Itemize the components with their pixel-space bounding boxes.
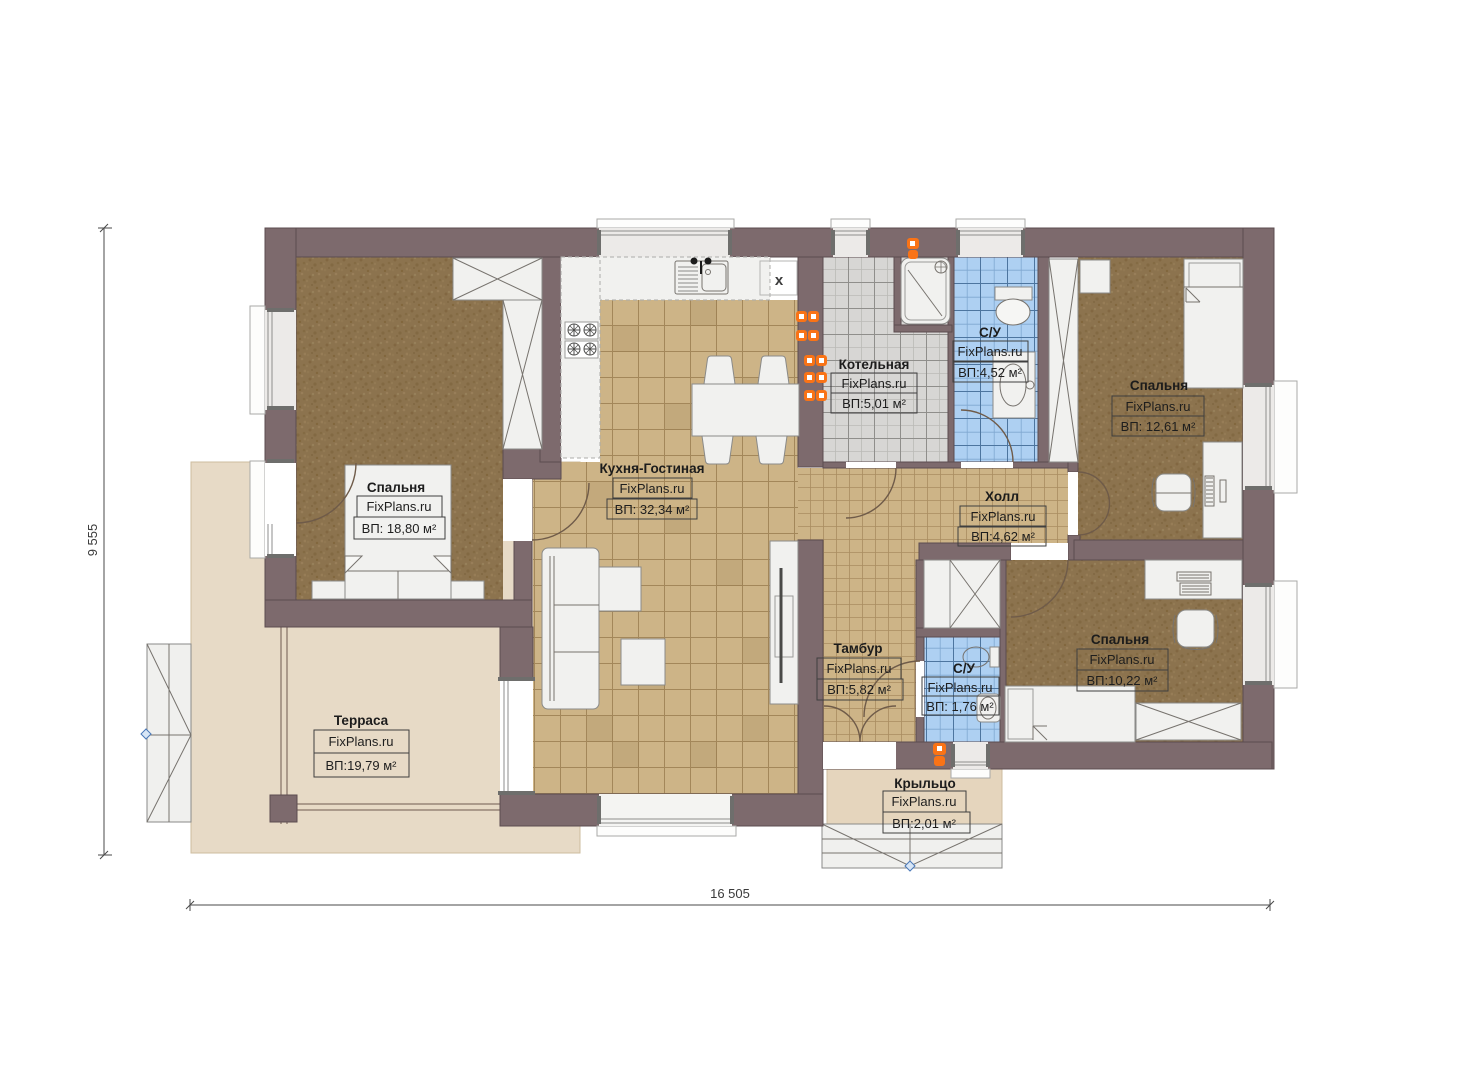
svg-text:FixPlans.ru: FixPlans.ru [1125, 399, 1190, 414]
svg-text:ВП: 32,34 м²: ВП: 32,34 м² [615, 502, 690, 517]
svg-text:ВП: 1,76 м²: ВП: 1,76 м² [926, 699, 994, 714]
svg-text:Спальня: Спальня [1091, 632, 1149, 647]
svg-text:Спальня: Спальня [367, 480, 425, 495]
svg-text:ВП:2,01 м²: ВП:2,01 м² [892, 816, 956, 831]
svg-text:ВП:5,82 м²: ВП:5,82 м² [827, 682, 891, 697]
svg-text:Котельная: Котельная [839, 357, 910, 372]
svg-text:Холл: Холл [985, 489, 1019, 504]
svg-text:Тамбур: Тамбур [834, 641, 883, 656]
svg-text:FixPlans.ru: FixPlans.ru [328, 734, 393, 749]
svg-text:ВП:5,01 м²: ВП:5,01 м² [842, 396, 906, 411]
svg-text:ВП: 18,80 м²: ВП: 18,80 м² [362, 521, 437, 536]
svg-text:ВП: 12,61 м²: ВП: 12,61 м² [1121, 419, 1196, 434]
svg-text:С/У: С/У [953, 661, 976, 676]
svg-text:FixPlans.ru: FixPlans.ru [826, 661, 891, 676]
svg-text:ВП:4,52 м²: ВП:4,52 м² [958, 365, 1022, 380]
svg-text:16 505: 16 505 [710, 886, 750, 901]
svg-text:FixPlans.ru: FixPlans.ru [619, 481, 684, 496]
svg-text:Кухня-Гостиная: Кухня-Гостиная [600, 461, 705, 476]
svg-text:9 555: 9 555 [85, 524, 100, 557]
svg-text:FixPlans.ru: FixPlans.ru [957, 344, 1022, 359]
svg-text:С/У: С/У [979, 325, 1002, 340]
svg-text:FixPlans.ru: FixPlans.ru [891, 794, 956, 809]
svg-text:Крыльцо: Крыльцо [894, 776, 955, 791]
svg-text:FixPlans.ru: FixPlans.ru [927, 680, 992, 695]
svg-text:ВП:4,62 м²: ВП:4,62 м² [971, 529, 1035, 544]
svg-text:FixPlans.ru: FixPlans.ru [841, 376, 906, 391]
svg-text:FixPlans.ru: FixPlans.ru [1089, 652, 1154, 667]
svg-text:Спальня: Спальня [1130, 378, 1188, 393]
svg-text:FixPlans.ru: FixPlans.ru [970, 509, 1035, 524]
svg-text:Терраса: Терраса [334, 713, 389, 728]
svg-text:ВП:19,79 м²: ВП:19,79 м² [325, 758, 397, 773]
svg-text:FixPlans.ru: FixPlans.ru [366, 499, 431, 514]
svg-text:ВП:10,22 м²: ВП:10,22 м² [1086, 673, 1158, 688]
svg-text:x: x [775, 272, 784, 289]
